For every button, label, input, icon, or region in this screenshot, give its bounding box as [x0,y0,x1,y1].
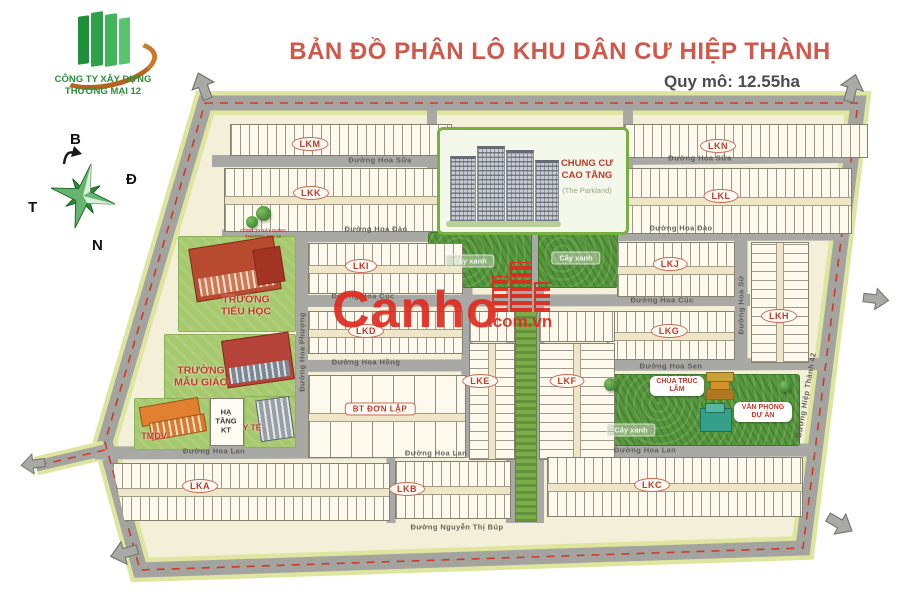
page-title: BẢN ĐỒ PHÂN LÔ KHU DÂN CƯ HIỆP THÀNH [260,38,860,66]
block-villa [308,375,466,458]
watermark-domain: .com.vn [488,312,552,332]
tree-icon [256,206,271,221]
tree-icon [604,378,617,391]
block-label-lkk: LKK [293,186,329,200]
project-office-label: VĂN PHÒNG DỰ ÁN [734,402,792,422]
apartment-subtitle: (The Parkland) [556,186,618,195]
apartment-line1: CHUNG CƯ [561,158,613,169]
block-lkf [539,343,615,460]
block-label-lkn: LKN [700,139,736,153]
block-label-lkm: LKM [292,137,329,151]
company-logo: CÔNG TY XÂY DỰNG THƯƠNG MẠI 12 [44,8,162,108]
street-hoa-hong: Đường Hoa Hồng [332,358,400,367]
block-lkc [547,457,803,517]
block-label-lka: LKA [182,479,218,493]
street-nguyen-thi-bup: Đường Nguyễn Thị Búp [411,523,504,532]
block-label-lke: LKE [462,374,498,388]
street-hoa-lan-right: Đường Hoa Lan [614,446,676,455]
street-hoa-lan-mid: Đường Hoa Lan [405,449,467,458]
tree-icon [246,216,258,228]
street-hoa-cuc-right: Đường Hoa Cúc [630,296,693,305]
street-hoa-dao-left: Đường Hoa Đào [344,225,407,234]
infrastructure-label: HẠ TẦNG KT [213,408,239,435]
block-label-lkg: LKG [651,324,688,338]
project-office-building [700,408,732,432]
compass-west: T [28,199,37,216]
watermark-brand: Canho [332,280,499,340]
apartment-label: CHUNG CƯ CAO TẦNG [556,158,618,182]
watermark-building-icon [534,282,550,312]
compass-north: B [70,131,81,148]
tower-icon [506,150,534,222]
block-lkm [230,124,452,156]
block-label-lkb: LKB [389,482,425,496]
block-lkn [624,124,868,158]
pagoda-icon-3 [706,389,734,400]
block-lkh [751,242,809,363]
block-label-lkj: LKJ [653,257,688,271]
ground-strip [446,221,561,227]
street-hoa-phuong: Đường Hoa Phượng [298,312,307,392]
kindergarten-label: TRƯỜNG MẪU GIÁO [169,365,233,388]
scale-label: Quy mô: 12.55ha [430,72,800,92]
street-hoa-dao-right: Đường Hoa Đào [649,224,712,233]
street-hoa-lan-left: Đường Hoa Lan [183,447,245,456]
block-label-lkc: LKC [634,478,670,492]
compass-south: N [92,237,103,254]
pagoda-label: CHÙA TRÚC LÂM [650,376,704,396]
apartment-line2: CAO TẦNG [562,170,613,181]
compass-rose: B Đ T N [26,128,141,258]
medical-label: Y TẾ [242,423,262,432]
primary-school-label: TRƯỜNG TIỂU HỌC [211,294,281,317]
green-area-label-1: Cây xanh [445,255,494,268]
tower-icon [477,146,505,222]
green-median-strip [515,312,537,522]
green-area-label-2: Cây xanh [551,252,600,265]
street-hoa-sen: Đường Hoa Sen [640,362,703,371]
watermark-building-icon [492,276,508,312]
tower-icon [450,156,476,222]
small-watermark: CÔNG TY XÂY DỰNG THƯƠNG MẠI 12 [228,228,298,240]
street-hoa-sua-left: Đường Hoa Sữa [348,156,411,165]
block-label-lkh: LKH [761,309,797,323]
block-label-lkf: LKF [550,374,585,388]
street-hoa-sua-right: Đường Hoa Sữa [668,154,731,163]
company-name: CÔNG TY XÂY DỰNG THƯƠNG MẠI 12 [44,74,162,98]
medical-building [255,396,295,442]
street-hoa-su: Đường Hoa Sứ [737,276,746,335]
apartment-complex-box: CHUNG CƯ CAO TẦNG (The Parkland) [437,127,629,235]
plot-map-page: CHUNG CƯ CAO TẦNG (The Parkland) CÔNG TY… [0,0,900,600]
block-label-lkl: LKL [704,189,739,203]
block-lka [112,463,390,521]
block-label-villa: BT ĐƠN LẬP [345,403,416,416]
tmdv-label: TMDV [141,432,167,442]
compass-east: Đ [126,171,137,188]
block-lke [469,343,515,460]
watermark-building-icon [510,262,532,312]
block-lkk [224,168,458,232]
tree-icon [779,380,791,392]
block-label-lki: LKI [345,259,377,273]
green-area-label-3: Cây xanh [606,424,655,437]
